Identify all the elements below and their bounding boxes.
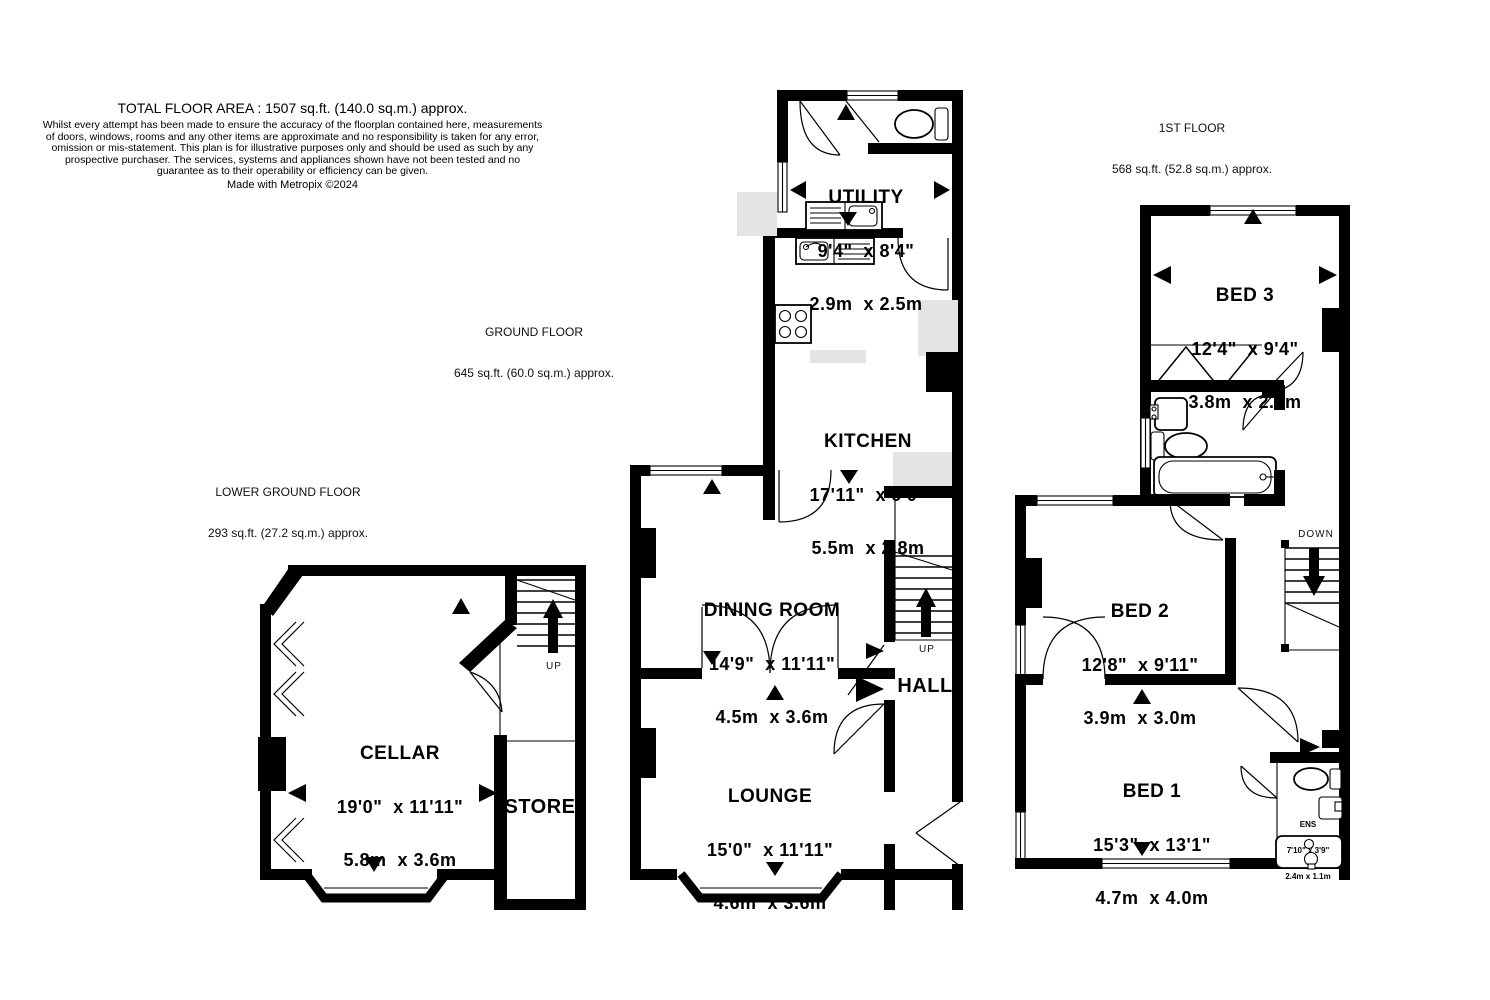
room-label-ensuite: ENS 7'10" x 3'9" 2.4m x 1.1m [1285, 803, 1330, 900]
hob [775, 305, 811, 343]
floorplan-page: TOTAL FLOOR AREA : 1507 sq.ft. (140.0 sq… [0, 0, 1490, 1000]
up-label-ground: UP [919, 644, 935, 655]
room-dims-metric: 4.5m x 3.6m [704, 708, 840, 727]
floor-area: 293 sq.ft. (27.2 sq.m.) approx. [208, 527, 368, 541]
room-name: BED 1 [1093, 782, 1211, 802]
floor-label-first: 1ST FLOOR 568 sq.ft. (52.8 sq.m.) approx… [1112, 94, 1272, 204]
down-label: DOWN [1298, 529, 1334, 540]
credit-text: Made with Metropix ©2024 [40, 179, 545, 191]
total-floor-area: TOTAL FLOOR AREA : 1507 sq.ft. (140.0 sq… [40, 100, 545, 116]
room-dims-imperial: 14'9" x 11'11" [704, 655, 840, 674]
up-label-cellar: UP [546, 661, 562, 672]
store-label: STORE [504, 796, 575, 819]
room-dims-imperial: 19'0" x 11'11" [337, 798, 463, 817]
cellar-stairs [517, 580, 575, 653]
bathroom-basin [1150, 398, 1187, 430]
room-dims-metric: 3.9m x 3.0m [1082, 709, 1199, 728]
dim-arrow-right [934, 181, 950, 199]
landing-stairs [1281, 540, 1345, 652]
hall-label: HALL [897, 675, 952, 698]
room-dims-metric: 2.9m x 2.5m [809, 295, 922, 314]
room-name: BED 2 [1082, 602, 1199, 622]
dim-arrow-left [1153, 266, 1171, 284]
floor-title: LOWER GROUND FLOOR [208, 486, 368, 500]
floor-title: 1ST FLOOR [1112, 122, 1272, 136]
room-name: KITCHEN [810, 432, 927, 452]
dim-arrow-right [856, 676, 884, 702]
floor-area: 568 sq.ft. (52.8 sq.m.) approx. [1112, 163, 1272, 177]
disclaimer-text: Whilst every attempt has been made to en… [40, 120, 545, 178]
room-label-dining: DINING ROOM 14'9" x 11'11" 4.5m x 3.6m [704, 567, 840, 761]
ensuite-toilet [1294, 768, 1341, 790]
dim-arrow-up [703, 479, 721, 494]
room-label-bed1: BED 1 15'3" x 13'1" 4.7m x 4.0m [1093, 748, 1211, 942]
room-dims-metric: 5.8m x 3.6m [337, 851, 463, 870]
room-dims-imperial: 7'10" x 3'9" [1285, 847, 1330, 856]
room-dims-imperial: 17'11" x 9'0" [810, 486, 927, 505]
room-dims-metric: 4.6m x 3.6m [707, 894, 833, 913]
room-dims-imperial: 15'3" x 13'1" [1093, 836, 1211, 855]
room-dims-metric: 3.8m x 2.9m [1188, 393, 1301, 412]
dim-arrow-left [288, 784, 306, 802]
room-label-bed3: BED 3 12'4" x 9'4" 3.8m x 2.9m [1188, 252, 1301, 446]
room-dims-imperial: 15'0" x 11'11" [707, 841, 833, 860]
room-name: LOUNGE [707, 787, 833, 807]
bathtub [1154, 457, 1276, 497]
room-label-cellar: CELLAR 19'0" x 11'11" 5.8m x 3.6m [337, 710, 463, 904]
dim-arrow-up [452, 598, 470, 614]
dim-arrow-right [1319, 266, 1337, 284]
room-dims-imperial: 12'8" x 9'11" [1082, 656, 1199, 675]
floor-label-ground: GROUND FLOOR 645 sq.ft. (60.0 sq.m.) app… [454, 298, 614, 408]
floor-title: GROUND FLOOR [454, 326, 614, 340]
room-name: ENS [1285, 821, 1330, 830]
room-dims-imperial: 9'4" x 8'4" [809, 242, 922, 261]
wc-toilet [895, 108, 948, 140]
room-dims-metric: 5.5m x 2.8m [810, 539, 927, 558]
room-dims-imperial: 12'4" x 9'4" [1188, 340, 1301, 359]
room-name: UTILITY [809, 188, 922, 208]
floor-label-lower-ground: LOWER GROUND FLOOR 293 sq.ft. (27.2 sq.m… [208, 458, 368, 568]
header-block: TOTAL FLOOR AREA : 1507 sq.ft. (140.0 sq… [40, 100, 545, 191]
room-name: BED 3 [1188, 286, 1301, 306]
floor-area: 645 sq.ft. (60.0 sq.m.) approx. [454, 367, 614, 381]
room-label-utility: UTILITY 9'4" x 8'4" 2.9m x 2.5m [809, 154, 922, 348]
room-name: DINING ROOM [704, 601, 840, 621]
room-label-kitchen: KITCHEN 17'11" x 9'0" 5.5m x 2.8m [810, 398, 927, 592]
room-label-lounge: LOUNGE 15'0" x 11'11" 4.6m x 3.6m [707, 753, 833, 947]
room-label-bed2: BED 2 12'8" x 9'11" 3.9m x 3.0m [1082, 568, 1199, 762]
room-dims-metric: 4.7m x 4.0m [1093, 889, 1211, 908]
room-name: CELLAR [337, 744, 463, 764]
down-arrow [1303, 576, 1325, 596]
room-dims-metric: 2.4m x 1.1m [1285, 873, 1330, 882]
dim-arrow-left [790, 181, 806, 199]
dim-arrow-up [837, 104, 855, 120]
